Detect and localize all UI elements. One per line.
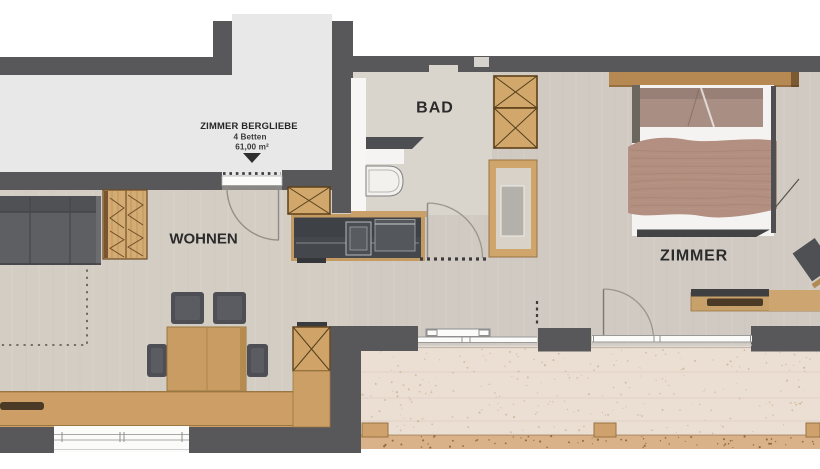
svg-text:ZIMMER: ZIMMER (660, 248, 728, 265)
svg-text:BAD: BAD (416, 100, 454, 117)
svg-text:4 Betten: 4 Betten (233, 133, 266, 142)
svg-text:WOHNEN: WOHNEN (169, 231, 237, 248)
svg-text:ZIMMER BERGLIEBE: ZIMMER BERGLIEBE (200, 120, 297, 131)
svg-text:61,00 m²: 61,00 m² (235, 143, 269, 152)
